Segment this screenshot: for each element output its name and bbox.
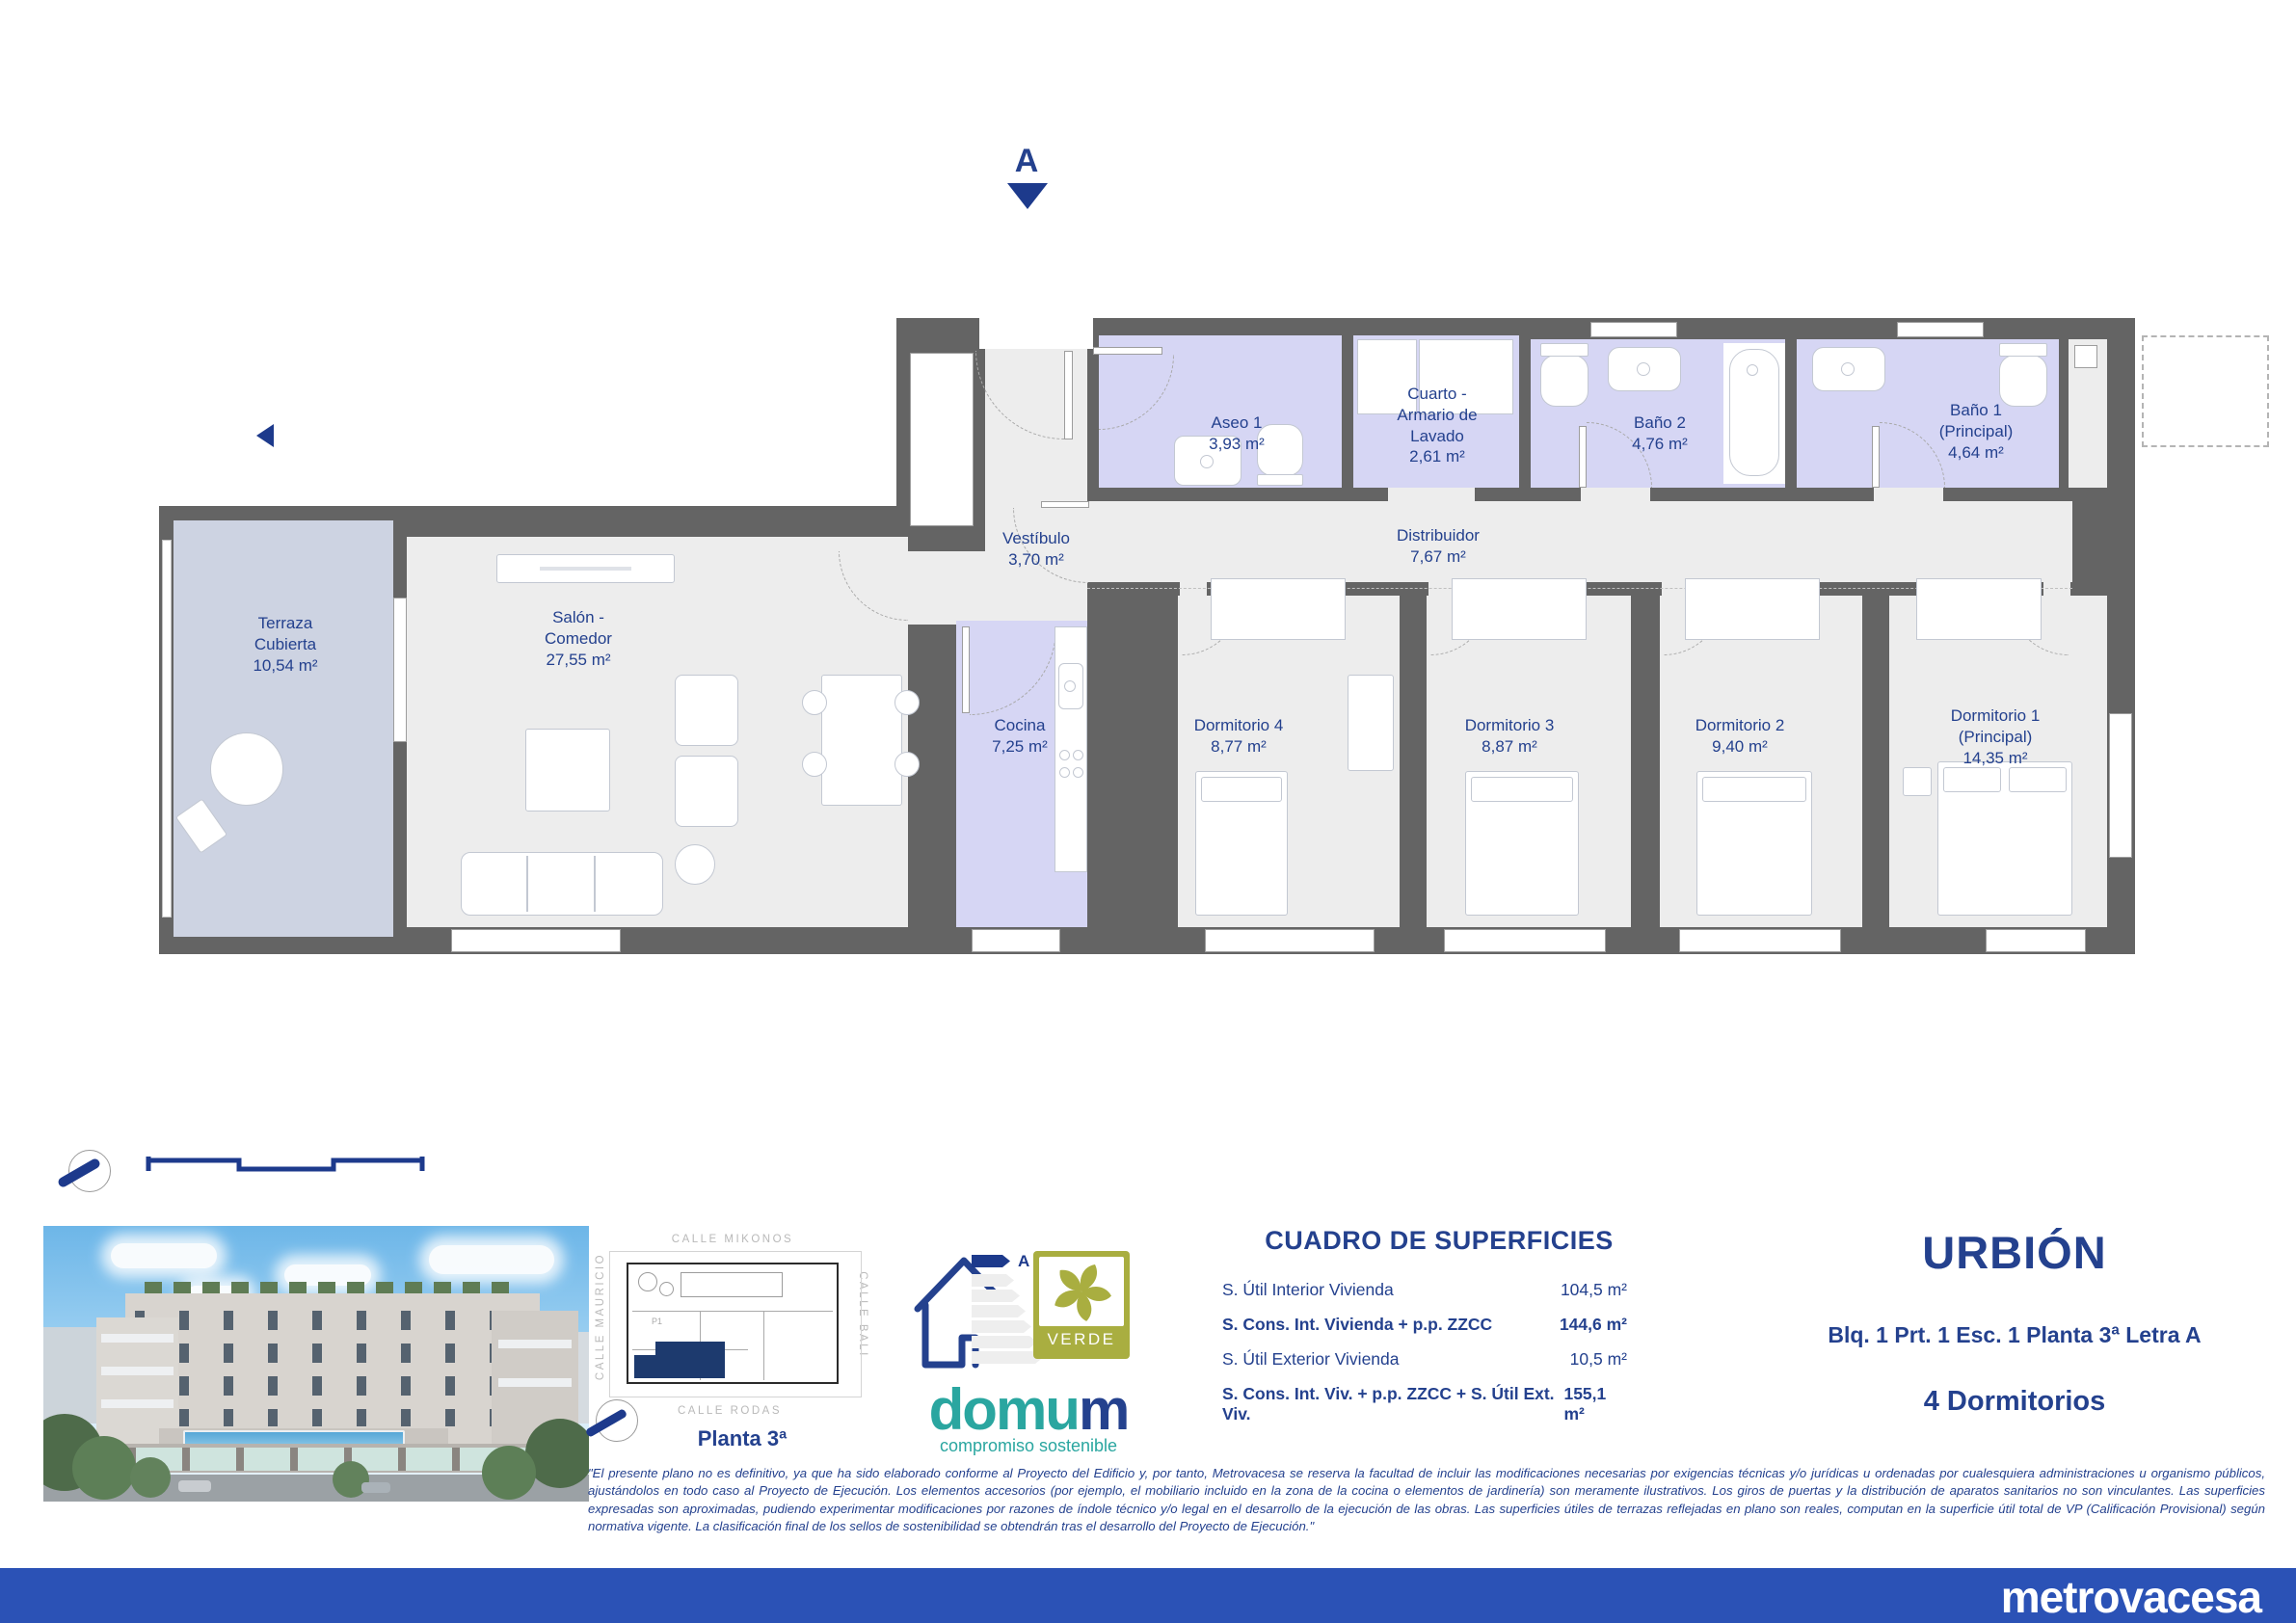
photo-tree-5 [130, 1457, 171, 1498]
window-terraza-salon [393, 598, 407, 742]
room-label-distribuidor: Distribuidor7,67 m² [1375, 525, 1501, 568]
window-cocina [972, 929, 1060, 952]
surfaces-row-4-label: S. Cons. Int. Viv. + p.p. ZZCC + S. Útil… [1222, 1384, 1563, 1424]
door-leaf-bano2 [1579, 426, 1587, 488]
window-dorm3 [1444, 929, 1606, 952]
door-leaf-vestibulo [1041, 501, 1089, 508]
sofa-cushion-line-2 [594, 856, 596, 912]
verde-badge-inner [1039, 1257, 1124, 1326]
building-photo [43, 1226, 589, 1502]
furniture-armchair-1 [675, 675, 738, 746]
site-inner-line-3 [763, 1311, 764, 1380]
room-label-lavado: Cuarto - Armario de Lavado2,61 m² [1380, 384, 1494, 467]
surfaces-row-1-label: S. Útil Interior Vivienda [1222, 1280, 1394, 1300]
energy-bar-4 [972, 1320, 1031, 1333]
kitchen-sink-drain [1064, 680, 1076, 692]
terraza-railing [162, 540, 172, 918]
room-label-terraza: Terraza Cubierta10,54 m² [232, 613, 338, 676]
footer-brand-logo: metrovacesa [2001, 1571, 2261, 1623]
site-unit-highlight-a [634, 1355, 657, 1378]
site-unit-tag: P1 [652, 1317, 662, 1326]
window-dorm1 [1986, 929, 2086, 952]
surfaces-row-4-value: 155,1 m² [1563, 1384, 1627, 1424]
bano2-toilet [1540, 355, 1589, 407]
bano2-tub-drain [1747, 364, 1758, 376]
room-label-dorm1: Dormitorio 1 (Principal)14,35 m² [1933, 705, 2058, 768]
surfaces-row-2-value: 144,6 m² [1560, 1315, 1627, 1335]
window-bano1 [1897, 322, 1984, 337]
room-label-bano2: Baño 24,76 m² [1616, 412, 1703, 455]
window-bano2 [1590, 322, 1677, 337]
hob-burner-3 [1059, 767, 1070, 778]
furniture-dining-chair-3 [894, 690, 920, 715]
energy-letter: A [1018, 1252, 1029, 1271]
photo-tree-2 [72, 1436, 136, 1500]
sofa-cushion-line-1 [526, 856, 528, 912]
photo-balcony-1 [101, 1334, 174, 1343]
bano2-sink-drain [1637, 362, 1650, 376]
surfaces-row-1-value: 104,5 m² [1561, 1280, 1627, 1300]
window-dorm1-side [2109, 713, 2132, 858]
pillow-dorm4 [1201, 777, 1282, 802]
closet-dorm1 [1916, 578, 2042, 640]
site-pool-outline [681, 1272, 783, 1297]
room-terraza-fill [174, 520, 393, 937]
domum-tagline: compromiso sostenible [894, 1436, 1163, 1456]
window-dorm2 [1679, 929, 1841, 952]
photo-balcony-5 [498, 1378, 572, 1387]
verde-leaf-icon [1039, 1257, 1124, 1326]
bano1-toilet-tank [1999, 343, 2047, 357]
surfaces-title: CUADRO DE SUPERFICIES [1198, 1226, 1680, 1256]
pillow-dorm1-a [1943, 767, 2001, 792]
energy-bar-6 [972, 1351, 1043, 1364]
window-dorm4 [1205, 929, 1375, 952]
photo-window-row-1 [135, 1311, 530, 1330]
site-unit-highlight-b [655, 1342, 725, 1378]
photo-cloud-1 [111, 1243, 217, 1268]
section-marker-a-label: A [1002, 143, 1051, 180]
unit-location: Blq. 1 Prt. 1 Esc. 1 Planta 3ª Letra A [1783, 1322, 2246, 1348]
street-label-left: CALLE MAURICIO [595, 1244, 606, 1389]
verde-label: VERDE [1033, 1330, 1130, 1349]
door-gap-lavado [1388, 488, 1475, 503]
disclaimer-text: "El presente plano no es definitivo, ya … [588, 1465, 2265, 1536]
hob-burner-4 [1073, 767, 1083, 778]
room-label-bano1: Baño 1 (Principal)4,64 m² [1923, 400, 2029, 463]
photo-cloud-3 [429, 1245, 554, 1274]
surfaces-row-3-label: S. Útil Exterior Vivienda [1222, 1349, 1400, 1370]
closet-dorm2 [1685, 578, 1820, 640]
photo-car-1 [178, 1480, 211, 1492]
photo-window-row-3 [135, 1376, 530, 1396]
door-gap-dorm4 [1180, 582, 1207, 596]
project-title: URBIÓN [1822, 1226, 2207, 1279]
room-label-dorm2: Dormitorio 29,40 m² [1677, 715, 1802, 758]
pillow-dorm1-b [2009, 767, 2067, 792]
door-leaf-aseo1 [1093, 347, 1162, 355]
furniture-sofa [461, 852, 663, 916]
aseo1-sink-drain [1200, 455, 1214, 468]
photo-window-row-4 [135, 1409, 530, 1426]
domum-wordmark: domum [894, 1376, 1163, 1443]
bano1-toilet [1999, 355, 2047, 407]
hob-burner-2 [1073, 750, 1083, 760]
closet-dorm4 [1211, 578, 1346, 640]
bano1-sink-drain [1841, 362, 1855, 376]
room-label-aseo1: Aseo 13,93 m² [1193, 412, 1280, 455]
surfaces-row-4: S. Cons. Int. Viv. + p.p. ZZCC + S. Útil… [1222, 1384, 1627, 1424]
surfaces-row-2-label: S. Cons. Int. Vivienda + p.p. ZZCC [1222, 1315, 1492, 1335]
door-gap-bano2 [1581, 488, 1650, 503]
section-marker-a-arrow-icon [1007, 183, 1048, 209]
furniture-dining-table [821, 675, 902, 806]
energy-bar-3 [972, 1305, 1026, 1317]
energy-bar-a-icon [972, 1255, 1010, 1267]
neighbour-terrace-dashed-outline [2142, 335, 2269, 447]
nightstand-dorm1 [1903, 767, 1932, 796]
passage-salon-vestibulo [908, 551, 985, 625]
energy-bar-5 [972, 1336, 1037, 1348]
scale-bar [145, 1149, 426, 1187]
surfaces-row-1: S. Útil Interior Vivienda104,5 m² [1222, 1280, 1627, 1300]
domum-wordmark-teal: domu [929, 1377, 1079, 1442]
pillow-dorm2 [1702, 777, 1806, 802]
room-label-dorm3: Dormitorio 38,87 m² [1447, 715, 1572, 758]
nook-detail-box [2074, 345, 2097, 368]
energy-bar-2 [972, 1290, 1020, 1302]
desk-dorm4 [1348, 675, 1394, 771]
door-gap-bano1 [1874, 488, 1943, 503]
photo-balcony-3 [101, 1399, 174, 1408]
furniture-dining-chair-4 [894, 752, 920, 777]
floor-label: Planta 3ª [665, 1426, 819, 1451]
furniture-dining-chair-1 [802, 690, 827, 715]
closet-dorm3 [1452, 578, 1587, 640]
photo-tree-4 [482, 1446, 536, 1500]
site-garden-blob-2 [659, 1282, 674, 1296]
surfaces-row-3-value: 10,5 m² [1570, 1349, 1627, 1370]
photo-balcony-4 [498, 1340, 572, 1348]
pillow-dorm3 [1471, 777, 1573, 802]
photo-window-row-2 [135, 1344, 530, 1363]
street-label-bottom: CALLE RODAS [657, 1405, 802, 1417]
furniture-coffee-table [525, 729, 610, 811]
furniture-side-table [675, 844, 715, 885]
furniture-terrace-table [210, 732, 283, 806]
shaft-box [910, 353, 974, 526]
aseo1-toilet-tank [1257, 474, 1303, 486]
room-label-dorm4: Dormitorio 48,77 m² [1176, 715, 1301, 758]
street-label-top: CALLE MIKONOS [655, 1234, 810, 1245]
energy-bar-1 [972, 1274, 1014, 1287]
surfaces-row-2: S. Cons. Int. Vivienda + p.p. ZZCC144,6 … [1222, 1315, 1627, 1335]
door-gap-dorm1 [2043, 582, 2070, 596]
site-inner-line-1 [632, 1311, 833, 1312]
room-distribuidor-fill [1087, 501, 2072, 582]
surfaces-row-3: S. Útil Exterior Vivienda10,5 m² [1222, 1349, 1627, 1370]
section-marker-left-arrow-icon [256, 424, 274, 447]
window-salon [451, 929, 621, 952]
entry-opening [979, 306, 1093, 349]
photo-car-2 [361, 1482, 390, 1493]
furniture-armchair-2 [675, 756, 738, 827]
unit-type: 4 Dormitorios [1822, 1386, 2207, 1418]
site-garden-blob-1 [638, 1272, 657, 1291]
room-label-salon: Salón - Comedor27,55 m² [521, 607, 636, 670]
bano2-toilet-tank [1540, 343, 1589, 357]
verde-badge: VERDE [1033, 1251, 1130, 1359]
door-leaf-bano1 [1872, 426, 1880, 488]
door-leaf-entry [1064, 351, 1073, 439]
room-label-cocina: Cocina7,25 m² [976, 715, 1063, 758]
photo-roof-plants [145, 1282, 521, 1293]
room-label-vestibulo: Vestíbulo3,70 m² [983, 528, 1089, 571]
domum-wordmark-blue: m [1079, 1377, 1128, 1442]
furniture-dining-chair-2 [802, 752, 827, 777]
door-leaf-cocina [962, 626, 970, 713]
footer-bar [0, 1568, 2296, 1623]
photo-balcony-2 [101, 1367, 174, 1375]
furniture-sideboard-handle [540, 567, 631, 571]
